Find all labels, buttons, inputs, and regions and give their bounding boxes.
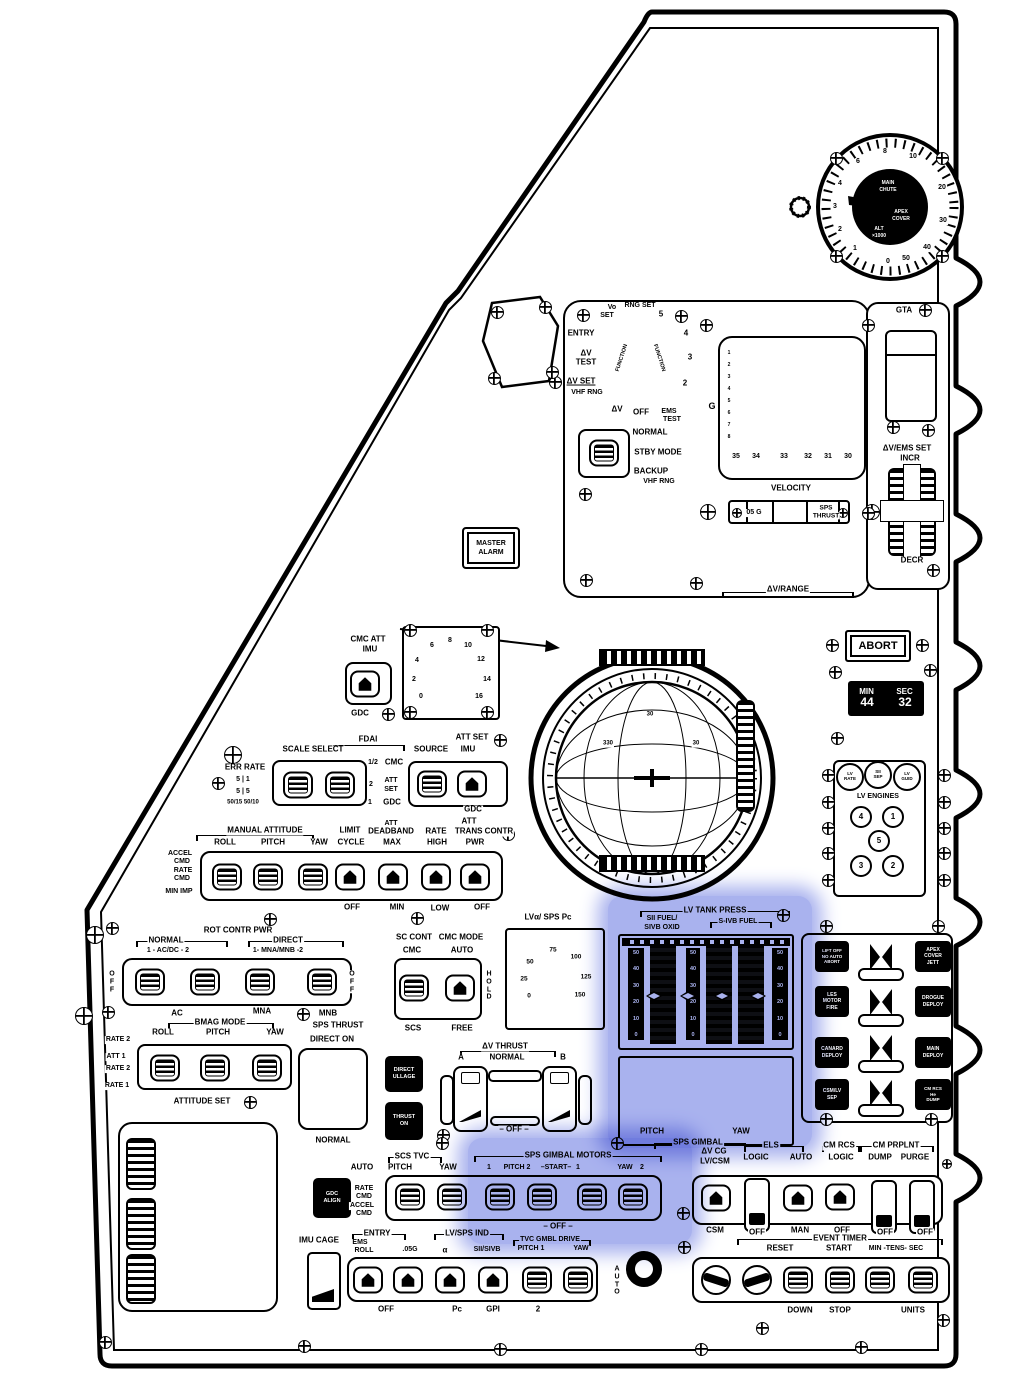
button-label: DEPLOY bbox=[822, 1053, 843, 1060]
label: 4 bbox=[683, 330, 689, 339]
label: ROLL bbox=[151, 1029, 175, 1038]
toggle-switch[interactable] bbox=[298, 864, 328, 891]
highlight-sps-gimbal-motors bbox=[468, 1138, 692, 1244]
screw-icon bbox=[75, 1007, 93, 1025]
switch-handle bbox=[205, 1060, 225, 1077]
pointer-toggle-switch[interactable] bbox=[350, 671, 380, 698]
label: A U T O bbox=[613, 1265, 620, 1296]
label: MANUAL ATTITUDE bbox=[226, 827, 303, 836]
switch-handle bbox=[441, 1273, 459, 1288]
button-label: ON bbox=[400, 1121, 408, 1128]
screw-icon bbox=[822, 847, 835, 860]
panel-box bbox=[599, 649, 705, 666]
label: APEX bbox=[893, 210, 909, 216]
indicator-light: 1 bbox=[882, 806, 904, 828]
toggle-switch[interactable] bbox=[865, 1267, 895, 1294]
cm-rcs-he-dump-button[interactable]: CM RCSHeDUMP bbox=[915, 1079, 951, 1110]
pointer-toggle-switch[interactable] bbox=[825, 1184, 855, 1211]
pointer-toggle-switch[interactable] bbox=[478, 1267, 508, 1294]
toggle-switch[interactable] bbox=[417, 771, 447, 798]
pointer-toggle-switch[interactable] bbox=[457, 771, 487, 798]
label: 2 bbox=[727, 363, 732, 369]
label: 8 bbox=[447, 637, 453, 645]
button-label: THRUST bbox=[393, 1114, 415, 1121]
button-label: DIRECT bbox=[394, 1067, 414, 1074]
screw-icon bbox=[927, 564, 940, 577]
label: MNA bbox=[252, 1008, 272, 1017]
label: 2 bbox=[682, 380, 688, 389]
label: ×1000 bbox=[871, 234, 887, 240]
panel-box bbox=[885, 354, 937, 356]
toggle-switch[interactable] bbox=[200, 1055, 230, 1082]
rotary-lever-switch[interactable] bbox=[701, 1265, 731, 1295]
switch-handle bbox=[913, 1272, 933, 1289]
guarded-switch[interactable] bbox=[744, 1178, 770, 1232]
canard-deploy-button[interactable]: CANARDDEPLOY bbox=[815, 1037, 849, 1068]
screw-icon bbox=[580, 574, 593, 587]
lift-off-no-auto-abort-light[interactable]: LIFT OFFNO AUTOABORT bbox=[815, 941, 849, 972]
switch-handle bbox=[831, 1190, 849, 1205]
les-motor-fire-button[interactable]: LESMOTORFIRE bbox=[815, 986, 849, 1017]
label: 50 bbox=[525, 958, 534, 965]
label: 33 bbox=[779, 453, 789, 461]
toggle-switch[interactable] bbox=[283, 772, 313, 799]
label: VELOCITY bbox=[770, 485, 812, 494]
rotary-handle[interactable] bbox=[870, 944, 892, 970]
label: 6 bbox=[429, 642, 435, 650]
label: 5 | 5 bbox=[235, 788, 251, 796]
label: 75 bbox=[548, 946, 557, 953]
screw-icon bbox=[826, 639, 839, 652]
switch-handle bbox=[427, 870, 445, 885]
rotary-handle[interactable] bbox=[870, 1035, 892, 1061]
switch-handle bbox=[195, 974, 215, 991]
label: 3 bbox=[727, 375, 732, 381]
label: TEST bbox=[662, 416, 682, 424]
label: 12 bbox=[476, 656, 486, 664]
screw-icon bbox=[481, 706, 494, 719]
button-label: FIRE bbox=[826, 1005, 837, 1012]
screw-icon bbox=[822, 822, 835, 835]
label: 1 bbox=[852, 245, 858, 253]
label: 05 G bbox=[745, 509, 762, 517]
label: YAW bbox=[572, 1245, 589, 1253]
label: 6 bbox=[727, 411, 732, 417]
screw-icon bbox=[382, 708, 395, 721]
label: ATT 1 bbox=[106, 1053, 127, 1061]
label: G bbox=[445, 698, 451, 704]
label: ΔV THRUST bbox=[481, 1043, 529, 1052]
label: 30 bbox=[938, 217, 948, 225]
label: OFF bbox=[916, 1229, 934, 1238]
switch-handle bbox=[830, 1272, 850, 1289]
rotary-handle[interactable] bbox=[870, 1080, 892, 1106]
label: SET bbox=[599, 312, 615, 320]
label: VHF RNG bbox=[570, 389, 604, 397]
label: PITCH bbox=[205, 1029, 231, 1038]
screw-icon bbox=[820, 920, 833, 933]
label: 1 bbox=[367, 799, 373, 807]
switch-handle bbox=[217, 869, 237, 886]
direct-ullage-button[interactable]: DIRECTULLAGE bbox=[385, 1056, 423, 1092]
switch-handle bbox=[384, 870, 402, 885]
label: DUMP bbox=[867, 1154, 893, 1163]
screw-icon bbox=[106, 922, 119, 935]
label: MNB bbox=[318, 1010, 338, 1019]
switch-handle bbox=[789, 1191, 807, 1206]
label: CMC ATT bbox=[349, 636, 386, 645]
sps-thrust-knob-mount bbox=[298, 1048, 368, 1130]
thrust-on-button[interactable]: THRUSTON bbox=[385, 1102, 423, 1140]
label: 30 bbox=[843, 453, 853, 461]
screw-icon bbox=[102, 1006, 115, 1019]
label: 16 bbox=[474, 693, 484, 701]
label: YAW bbox=[265, 1029, 285, 1038]
label: 0 bbox=[885, 258, 891, 266]
switch-handle bbox=[155, 1060, 175, 1077]
label: ENTRY bbox=[567, 330, 596, 339]
panel-box bbox=[578, 1075, 592, 1125]
rotary-handle[interactable] bbox=[870, 989, 892, 1015]
label: YAW bbox=[438, 1164, 458, 1173]
toggle-switch[interactable] bbox=[437, 1184, 467, 1211]
light-label: 3 bbox=[859, 862, 863, 870]
indicator-light: LVGUID bbox=[893, 763, 921, 791]
pointer-toggle-switch[interactable] bbox=[393, 1267, 423, 1294]
label: O F F bbox=[348, 970, 355, 993]
label: CM RCS bbox=[822, 1142, 856, 1151]
screw-icon bbox=[830, 152, 843, 165]
switch-handle bbox=[400, 1189, 420, 1206]
label: – OFF – bbox=[498, 1126, 529, 1135]
screw-icon bbox=[244, 1096, 257, 1109]
label: GDC bbox=[463, 806, 483, 815]
label: 50 bbox=[901, 255, 911, 263]
screw-icon bbox=[224, 746, 242, 764]
label: LV ENGINES bbox=[856, 793, 900, 801]
button-label: MASTER bbox=[476, 539, 506, 548]
pointer-toggle-switch[interactable] bbox=[353, 1267, 383, 1294]
label: ALT bbox=[873, 227, 884, 233]
switch-handle bbox=[356, 677, 374, 692]
screw-icon bbox=[830, 250, 843, 263]
screw-icon bbox=[675, 310, 688, 323]
label: 2 bbox=[368, 781, 374, 789]
panel-box bbox=[440, 1075, 454, 1125]
label: OFF bbox=[632, 409, 650, 418]
pitch-thumbwheel[interactable] bbox=[126, 1198, 156, 1250]
apollo-main-display-console: 14000.0 MIN SEC 44 32 ROLL 350 PITCH 350… bbox=[0, 0, 1017, 1380]
switch-handle bbox=[707, 1191, 725, 1206]
screw-icon bbox=[887, 421, 900, 434]
screw-icon bbox=[411, 912, 424, 925]
screw-icon bbox=[546, 366, 559, 379]
label: OFF bbox=[473, 904, 491, 913]
label: ACCEL bbox=[349, 1202, 375, 1210]
toggle-switch[interactable] bbox=[395, 1184, 425, 1211]
switch-handle bbox=[330, 777, 350, 794]
label: NORMAL bbox=[631, 429, 668, 438]
indicator-light: 3 bbox=[850, 855, 872, 877]
switch-handle bbox=[399, 1273, 417, 1288]
label: CYCLE bbox=[336, 839, 365, 848]
label: GDC bbox=[382, 799, 402, 808]
label: IMU CAGE bbox=[298, 1237, 340, 1246]
toggle-switch[interactable] bbox=[783, 1267, 813, 1294]
guarded-switch[interactable] bbox=[909, 1180, 935, 1234]
label: ATT bbox=[383, 777, 398, 785]
pointer-toggle-switch[interactable] bbox=[445, 975, 475, 1002]
label: YAW bbox=[309, 839, 329, 848]
button-label: ALIGN bbox=[323, 1198, 340, 1205]
label: THRUST bbox=[812, 512, 840, 519]
label: ROLL bbox=[353, 1247, 374, 1255]
label: G bbox=[707, 401, 716, 411]
imu-cage-switch[interactable] bbox=[307, 1252, 341, 1310]
screw-icon bbox=[494, 1343, 507, 1356]
switch-handle bbox=[258, 869, 278, 886]
label: 3 bbox=[687, 354, 693, 363]
label: ΔV/EMS SET bbox=[882, 445, 932, 454]
label: 35 bbox=[731, 453, 741, 461]
label: PITCH 1 bbox=[517, 1245, 546, 1253]
label: ΔV CG bbox=[700, 1148, 727, 1157]
label: COVER bbox=[891, 217, 911, 223]
indicator-light: 4 bbox=[850, 806, 872, 828]
label: MIN bbox=[389, 904, 406, 913]
switch-handle bbox=[870, 1272, 890, 1289]
toggle-switch[interactable] bbox=[245, 969, 275, 996]
entry-row bbox=[347, 1257, 598, 1302]
label: VHF RNG bbox=[642, 478, 676, 486]
label: CMC bbox=[384, 759, 404, 768]
screw-icon bbox=[938, 822, 951, 835]
switch-handle bbox=[914, 1215, 930, 1227]
label: SOURCE bbox=[413, 746, 449, 755]
label: A bbox=[457, 1054, 465, 1063]
label: LOGIC bbox=[742, 1154, 769, 1163]
pointer-toggle-switch[interactable] bbox=[378, 864, 408, 891]
indicator-light: 2 bbox=[882, 855, 904, 877]
button-label: GDC bbox=[326, 1191, 338, 1198]
dv-thrust-a-switch[interactable] bbox=[453, 1066, 488, 1132]
screw-icon bbox=[922, 424, 935, 437]
label: ENTRY bbox=[363, 1230, 392, 1239]
label: SPS THRUST bbox=[312, 1022, 365, 1031]
panel-box bbox=[599, 855, 705, 872]
screw-icon bbox=[938, 847, 951, 860]
button-label: SEP bbox=[827, 1095, 837, 1102]
toggle-switch[interactable] bbox=[253, 864, 283, 891]
label: RNG SET bbox=[623, 302, 656, 310]
switch-handle bbox=[876, 1215, 892, 1227]
master-alarm-button[interactable]: MASTERALARM bbox=[462, 527, 520, 569]
label: 5 | 1 bbox=[235, 776, 251, 784]
switch-handle bbox=[463, 777, 481, 792]
toggle-switch[interactable] bbox=[325, 772, 355, 799]
switch-handle bbox=[257, 1060, 277, 1077]
label: NORMAL bbox=[488, 1054, 525, 1063]
toggle-switch[interactable] bbox=[252, 1055, 282, 1082]
screw-icon bbox=[690, 577, 703, 590]
label: FREE bbox=[450, 1025, 473, 1034]
label: RATE bbox=[354, 1185, 375, 1193]
switch-handle bbox=[749, 1213, 765, 1225]
pointer-toggle-switch[interactable] bbox=[783, 1185, 813, 1212]
switch-handle bbox=[288, 777, 308, 794]
label: 0 bbox=[526, 992, 532, 999]
label: RATE 2 bbox=[105, 1036, 131, 1044]
panel-box bbox=[736, 700, 755, 812]
screw-icon bbox=[264, 913, 277, 926]
pointer-toggle-switch[interactable] bbox=[421, 864, 451, 891]
label: OFF bbox=[748, 1229, 766, 1238]
screw-icon bbox=[936, 152, 949, 165]
screw-icon bbox=[938, 874, 951, 887]
label: CMD bbox=[355, 1193, 373, 1201]
label: 1- MNA/MNB -2 bbox=[252, 947, 304, 955]
highlight-lv-tank-press bbox=[608, 896, 812, 1148]
toggle-switch[interactable] bbox=[190, 969, 220, 996]
switch-handle bbox=[788, 1272, 808, 1289]
switch-handle bbox=[404, 980, 424, 997]
guarded-switch[interactable] bbox=[871, 1180, 897, 1234]
label: 1/2 bbox=[367, 759, 379, 767]
label: RATE 1 bbox=[104, 1082, 130, 1090]
label: 3 bbox=[832, 203, 838, 211]
switch-handle bbox=[743, 1272, 770, 1288]
label: 40 bbox=[922, 244, 932, 252]
label: GTA bbox=[895, 307, 913, 316]
label: .05G bbox=[401, 1246, 418, 1254]
csm-lv-sep-button[interactable]: CSM/LVSEP bbox=[815, 1079, 849, 1110]
screw-icon bbox=[297, 1008, 310, 1021]
timer-sec-value: 32 bbox=[898, 696, 911, 709]
screw-icon bbox=[938, 796, 951, 809]
switch-handle bbox=[451, 981, 469, 996]
screw-icon bbox=[925, 1113, 938, 1126]
switch-handle bbox=[484, 1273, 502, 1288]
toggle-switch[interactable] bbox=[589, 440, 619, 467]
drogue-deploy-button[interactable]: DROGUEDEPLOY bbox=[915, 986, 951, 1017]
label: 14 bbox=[482, 676, 492, 684]
switch-handle bbox=[422, 776, 442, 793]
label: 20 bbox=[937, 184, 947, 192]
screw-icon bbox=[820, 1113, 833, 1126]
label: α bbox=[442, 1247, 449, 1256]
timer-min-value: 44 bbox=[860, 696, 873, 709]
label: ACCEL bbox=[167, 850, 193, 858]
label: DOWN bbox=[786, 1307, 813, 1316]
toggle-switch[interactable] bbox=[150, 1055, 180, 1082]
yaw-thumbwheel[interactable] bbox=[126, 1254, 156, 1304]
screw-icon bbox=[695, 1343, 708, 1356]
toggle-switch[interactable] bbox=[307, 969, 337, 996]
panel-box bbox=[488, 1070, 542, 1082]
toggle-switch[interactable] bbox=[135, 969, 165, 996]
switch-handle bbox=[312, 974, 332, 991]
toggle-switch[interactable] bbox=[399, 975, 429, 1002]
screw-icon bbox=[862, 319, 875, 332]
pointer-toggle-switch[interactable] bbox=[435, 1267, 465, 1294]
screw-icon bbox=[942, 1159, 952, 1169]
label: SPS bbox=[818, 504, 833, 511]
screw-icon bbox=[579, 488, 592, 501]
pointer-toggle-switch[interactable] bbox=[335, 864, 365, 891]
screw-icon bbox=[494, 734, 507, 747]
label: SC CONT bbox=[395, 934, 433, 943]
pointer-toggle-switch[interactable] bbox=[701, 1185, 731, 1212]
label: AUTO bbox=[789, 1154, 814, 1163]
apex-cover-jett-button[interactable]: APEXCOVERJETT bbox=[915, 941, 951, 972]
label: EMS bbox=[351, 1239, 368, 1247]
light-label: 4 bbox=[859, 813, 863, 821]
screw-icon bbox=[488, 372, 501, 385]
min-sec-timer: MIN SEC 44 32 bbox=[848, 681, 924, 716]
label: H O L D bbox=[485, 970, 492, 1001]
toggle-switch[interactable] bbox=[825, 1267, 855, 1294]
screw-icon bbox=[924, 664, 937, 677]
rotary-lever-switch[interactable] bbox=[742, 1265, 772, 1295]
label: O F F bbox=[108, 970, 115, 993]
button-label: DEPLOY bbox=[923, 1002, 944, 1009]
label: 4 bbox=[727, 387, 732, 393]
pointer-toggle-switch[interactable] bbox=[460, 864, 490, 891]
label: 2 bbox=[837, 226, 843, 234]
label: STOP bbox=[828, 1307, 852, 1316]
gdc-align-button[interactable]: GDCALIGN bbox=[313, 1178, 351, 1218]
light-label: RATE bbox=[844, 777, 856, 782]
label: CMD bbox=[355, 1210, 373, 1218]
screw-icon bbox=[822, 796, 835, 809]
switch-handle bbox=[527, 1272, 547, 1289]
label: UNITS bbox=[900, 1307, 926, 1316]
gta-switch-cover[interactable] bbox=[885, 330, 937, 422]
label: 8 bbox=[727, 435, 732, 441]
label: CMD bbox=[173, 875, 191, 883]
label: 0 bbox=[418, 693, 424, 701]
toggle-switch[interactable] bbox=[908, 1267, 938, 1294]
label: MIN -TENS- SEC bbox=[868, 1245, 924, 1253]
label: AC bbox=[170, 1010, 184, 1019]
switch-handle bbox=[303, 869, 323, 886]
toggle-switch[interactable] bbox=[522, 1267, 552, 1294]
main-deploy-button[interactable]: MAINDEPLOY bbox=[915, 1037, 951, 1068]
toggle-switch[interactable] bbox=[212, 864, 242, 891]
screw-icon bbox=[212, 777, 225, 790]
label: 5 bbox=[658, 311, 664, 320]
roll-thumbwheel[interactable] bbox=[126, 1138, 156, 1190]
switch-handle bbox=[341, 870, 359, 885]
dv-thrust-b-switch[interactable] bbox=[542, 1066, 577, 1132]
screw-icon bbox=[822, 874, 835, 887]
screw-icon bbox=[481, 624, 494, 637]
label: ΔV bbox=[610, 406, 623, 415]
indicator-light: LVRATE bbox=[836, 763, 864, 791]
button-label: JETT bbox=[927, 960, 939, 967]
label: START bbox=[825, 1245, 853, 1254]
label: OFF bbox=[343, 904, 361, 913]
toggle-switch[interactable] bbox=[563, 1267, 593, 1294]
light-label: 2 bbox=[891, 862, 895, 870]
screw-icon bbox=[919, 304, 932, 317]
label: AUTO bbox=[350, 1164, 375, 1173]
label: 50/15 50/10 bbox=[226, 800, 260, 807]
round-knob[interactable] bbox=[626, 1251, 662, 1287]
indicator-light: SIISEP bbox=[864, 761, 892, 789]
switch-handle bbox=[140, 974, 160, 991]
label: 7 bbox=[727, 423, 732, 429]
